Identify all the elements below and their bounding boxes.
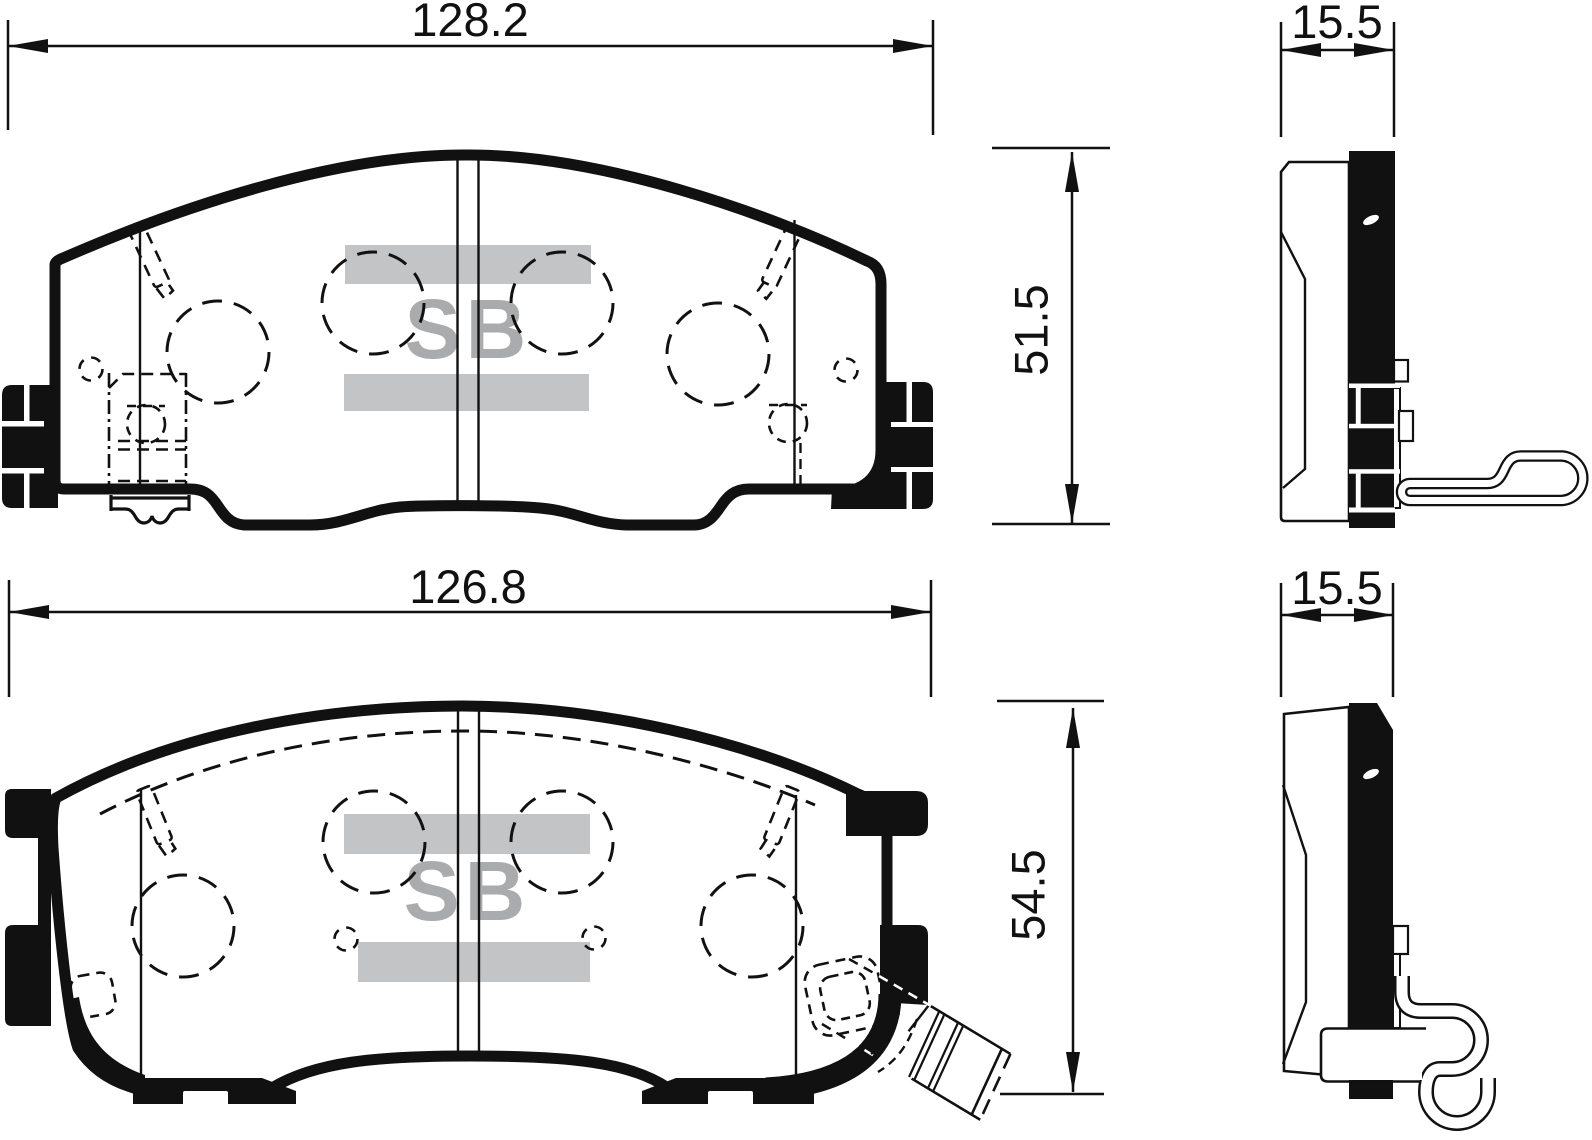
svg-text:126.8: 126.8 [409,560,527,613]
svg-text:128.2: 128.2 [411,0,529,46]
svg-text:15.5: 15.5 [1291,0,1382,48]
svg-text:54.5: 54.5 [1001,849,1054,940]
svg-text:15.5: 15.5 [1291,561,1382,614]
svg-text:51.5: 51.5 [1004,284,1057,375]
